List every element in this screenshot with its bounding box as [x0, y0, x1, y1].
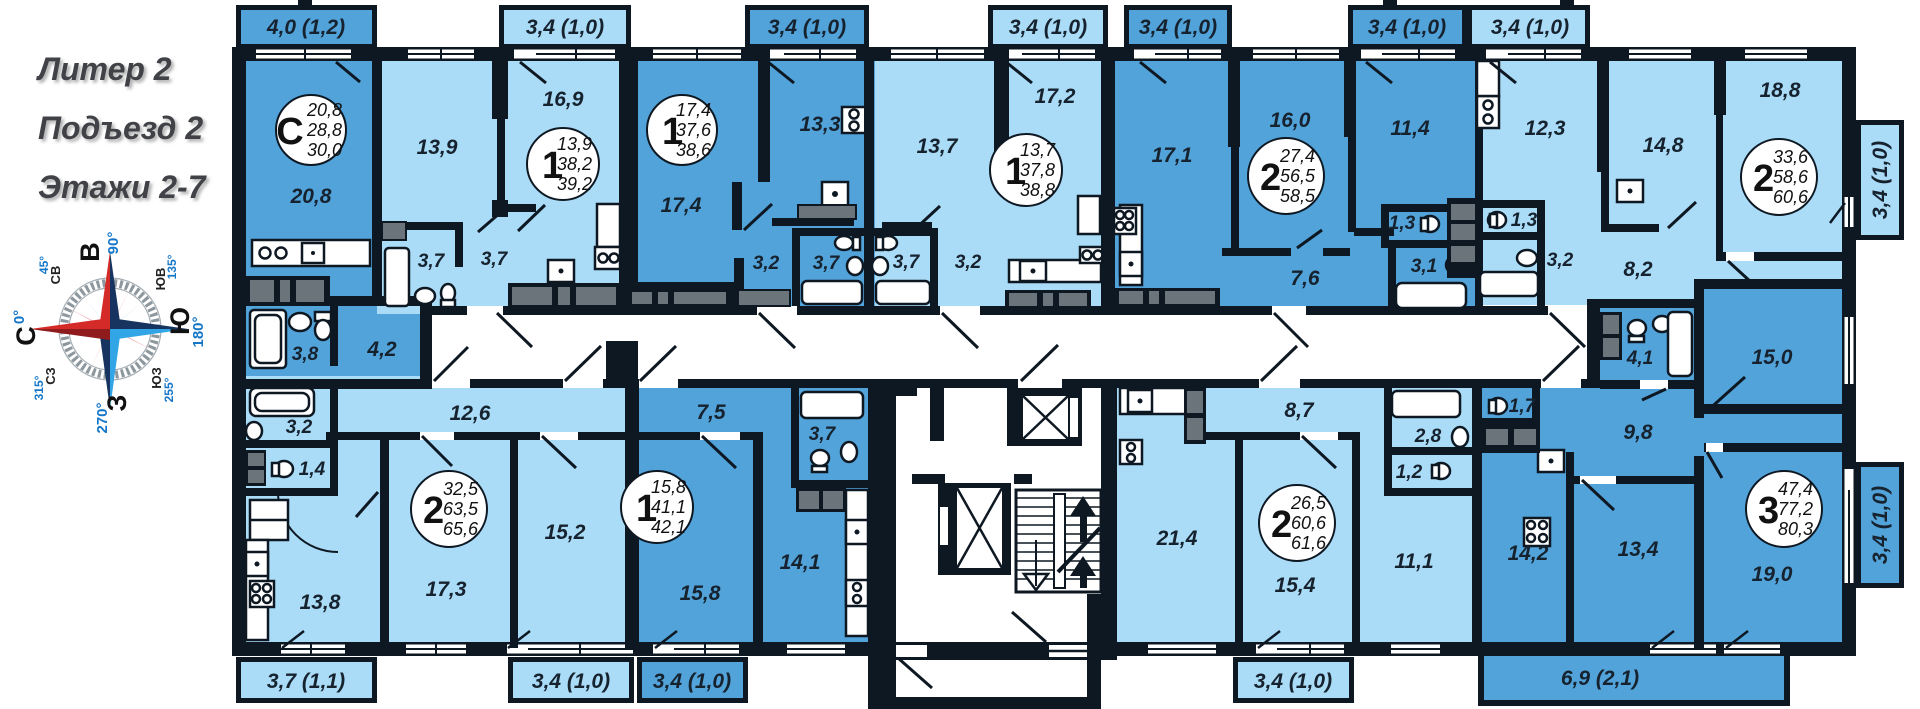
svg-text:58,6: 58,6 [1773, 167, 1809, 187]
svg-text:3: 3 [1758, 490, 1779, 532]
svg-text:42,1: 42,1 [651, 517, 686, 537]
svg-text:27,4: 27,4 [1279, 146, 1315, 166]
svg-text:15,0: 15,0 [1752, 346, 1793, 369]
svg-text:4,2: 4,2 [366, 338, 397, 361]
svg-text:3,4 (1,0): 3,4 (1,0) [1869, 141, 1892, 219]
svg-text:13,9: 13,9 [417, 136, 458, 159]
svg-text:3,2: 3,2 [955, 252, 982, 273]
svg-text:33,6: 33,6 [1773, 147, 1809, 167]
svg-text:3,4 (1,0): 3,4 (1,0) [1009, 16, 1087, 39]
svg-text:13,8: 13,8 [300, 591, 341, 614]
svg-text:Литер 2: Литер 2 [36, 51, 172, 87]
svg-text:255°: 255° [162, 377, 176, 402]
svg-text:60,6: 60,6 [1773, 187, 1809, 207]
svg-text:3,4 (1,0): 3,4 (1,0) [768, 16, 846, 39]
svg-text:3,4 (1,0): 3,4 (1,0) [1491, 16, 1569, 39]
svg-text:3,4 (1,0): 3,4 (1,0) [1869, 486, 1892, 564]
svg-text:Подъезд 2: Подъезд 2 [38, 110, 203, 146]
svg-text:135°: 135° [165, 254, 179, 279]
svg-text:1,7: 1,7 [1509, 396, 1537, 417]
svg-text:11,1: 11,1 [1394, 550, 1433, 573]
svg-text:17,1: 17,1 [1152, 144, 1193, 167]
svg-text:9,8: 9,8 [1623, 421, 1653, 444]
svg-text:37,8: 37,8 [1020, 160, 1055, 180]
svg-text:12,3: 12,3 [1525, 117, 1566, 140]
svg-text:2: 2 [1753, 158, 1774, 200]
svg-text:2: 2 [423, 490, 444, 532]
svg-text:3,4 (1,0): 3,4 (1,0) [1368, 16, 1446, 39]
svg-text:С: С [276, 111, 303, 153]
svg-text:21,4: 21,4 [1156, 527, 1198, 550]
svg-text:11,4: 11,4 [1390, 117, 1430, 140]
svg-text:32,5: 32,5 [443, 479, 479, 499]
svg-text:1,3: 1,3 [1389, 213, 1416, 234]
svg-text:38,8: 38,8 [1020, 180, 1055, 200]
svg-text:3,4 (1,0): 3,4 (1,0) [526, 16, 604, 39]
svg-text:90°: 90° [105, 232, 122, 255]
svg-text:13,7: 13,7 [1020, 140, 1056, 160]
svg-text:3,7 (1,1): 3,7 (1,1) [267, 670, 345, 693]
svg-text:3,7: 3,7 [893, 252, 921, 273]
svg-text:2: 2 [1271, 504, 1292, 546]
svg-text:3,4 (1,0): 3,4 (1,0) [532, 670, 610, 693]
svg-text:4,0 (1,2): 4,0 (1,2) [266, 16, 345, 39]
svg-text:315°: 315° [32, 375, 46, 400]
svg-text:3,7: 3,7 [813, 253, 841, 274]
svg-text:В: В [75, 242, 105, 262]
svg-text:47,4: 47,4 [1778, 479, 1813, 499]
svg-text:58,5: 58,5 [1280, 186, 1316, 206]
svg-text:7,6: 7,6 [1290, 267, 1320, 290]
svg-text:3,1: 3,1 [1411, 256, 1437, 277]
svg-text:3,4 (1,0): 3,4 (1,0) [653, 670, 731, 693]
svg-text:15,4: 15,4 [1275, 574, 1316, 597]
svg-text:16,0: 16,0 [1270, 109, 1311, 132]
svg-text:13,7: 13,7 [917, 135, 959, 158]
svg-text:3,7: 3,7 [481, 249, 509, 270]
svg-text:80,3: 80,3 [1778, 519, 1813, 539]
svg-text:15,8: 15,8 [680, 582, 721, 605]
svg-text:20,8: 20,8 [290, 185, 332, 208]
svg-text:37,6: 37,6 [676, 120, 712, 140]
svg-text:15,8: 15,8 [651, 477, 686, 497]
svg-text:38,2: 38,2 [557, 154, 592, 174]
svg-text:8,7: 8,7 [1284, 399, 1315, 422]
svg-text:13,4: 13,4 [1618, 538, 1659, 561]
svg-text:С: С [11, 326, 41, 346]
svg-text:12,6: 12,6 [450, 402, 491, 425]
svg-text:14,2: 14,2 [1508, 542, 1549, 565]
svg-text:8,2: 8,2 [1623, 258, 1653, 281]
svg-text:14,8: 14,8 [1643, 134, 1684, 157]
svg-text:60,6: 60,6 [1291, 513, 1327, 533]
svg-text:39,2: 39,2 [557, 174, 592, 194]
svg-text:45°: 45° [37, 256, 51, 274]
svg-text:14,1: 14,1 [780, 551, 821, 574]
svg-text:28,8: 28,8 [306, 120, 342, 140]
svg-text:13,9: 13,9 [557, 134, 592, 154]
svg-text:18,8: 18,8 [1760, 79, 1801, 102]
svg-text:17,4: 17,4 [661, 194, 702, 217]
svg-text:3,4 (1,0): 3,4 (1,0) [1139, 16, 1217, 39]
svg-text:1,4: 1,4 [299, 459, 326, 480]
svg-text:65,6: 65,6 [443, 519, 479, 539]
svg-text:17,4: 17,4 [676, 100, 711, 120]
svg-text:1,3: 1,3 [1511, 210, 1538, 231]
svg-text:3,4 (1,0): 3,4 (1,0) [1254, 670, 1332, 693]
svg-text:0°: 0° [11, 310, 28, 324]
svg-text:77,2: 77,2 [1778, 499, 1813, 519]
svg-text:3,7: 3,7 [809, 424, 837, 445]
svg-text:3,2: 3,2 [286, 417, 313, 438]
svg-text:20,8: 20,8 [306, 100, 342, 120]
svg-text:Этажи 2-7: Этажи 2-7 [38, 169, 208, 205]
svg-text:3,2: 3,2 [1547, 250, 1574, 271]
svg-text:56,5: 56,5 [1280, 166, 1316, 186]
svg-text:30,0: 30,0 [307, 140, 342, 160]
svg-text:6,9 (2,1): 6,9 (2,1) [1561, 667, 1639, 690]
svg-text:3,8: 3,8 [292, 344, 319, 365]
svg-text:15,2: 15,2 [545, 521, 586, 544]
svg-text:180°: 180° [190, 316, 207, 347]
svg-text:4,1: 4,1 [1626, 348, 1653, 369]
svg-text:63,5: 63,5 [443, 499, 479, 519]
svg-text:16,9: 16,9 [543, 88, 584, 111]
svg-text:17,2: 17,2 [1035, 85, 1076, 108]
svg-text:1,2: 1,2 [1396, 462, 1423, 483]
svg-text:13,3: 13,3 [800, 113, 841, 136]
svg-text:38,6: 38,6 [676, 140, 712, 160]
svg-text:3,7: 3,7 [418, 251, 446, 272]
svg-text:19,0: 19,0 [1752, 563, 1793, 586]
svg-text:3,2: 3,2 [753, 253, 780, 274]
svg-text:270°: 270° [94, 402, 111, 433]
svg-text:61,6: 61,6 [1291, 533, 1327, 553]
svg-text:7,5: 7,5 [696, 401, 726, 424]
svg-text:2: 2 [1260, 157, 1281, 199]
svg-text:17,3: 17,3 [426, 578, 467, 601]
svg-text:2,8: 2,8 [1414, 426, 1442, 447]
svg-text:26,5: 26,5 [1290, 493, 1327, 513]
svg-text:41,1: 41,1 [651, 497, 686, 517]
